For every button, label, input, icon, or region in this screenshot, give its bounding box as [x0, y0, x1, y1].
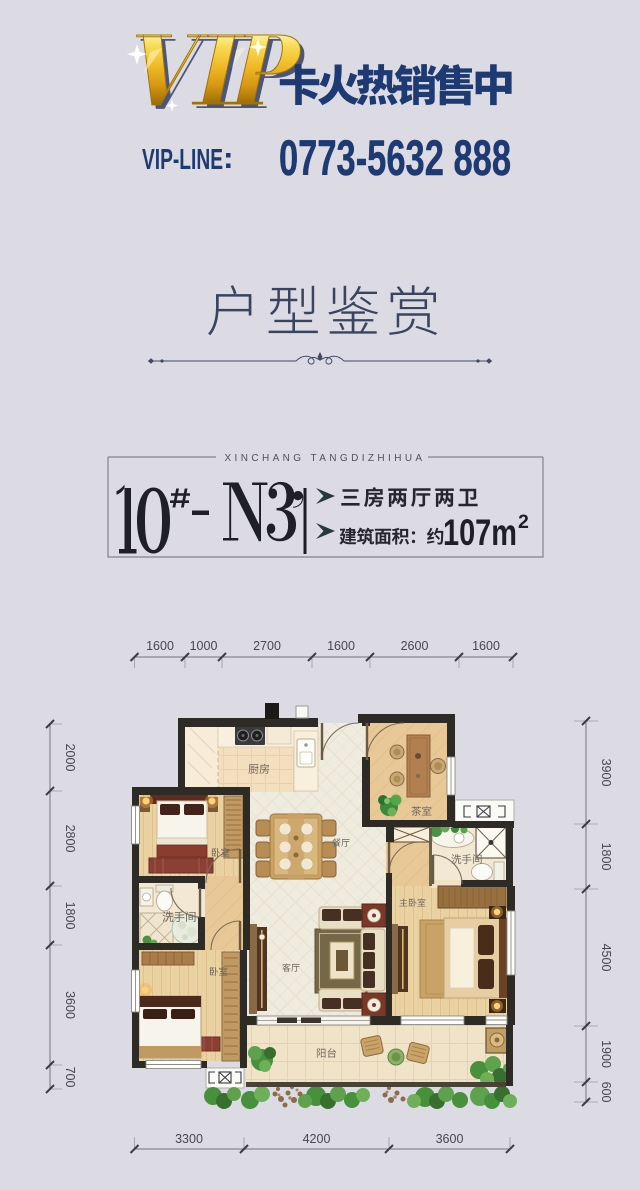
- svg-text:2: 2: [518, 511, 529, 533]
- svg-text:4500: 4500: [599, 944, 613, 972]
- svg-text:700: 700: [63, 1067, 77, 1088]
- svg-text:0773-5632 888: 0773-5632 888: [279, 130, 511, 186]
- svg-text:1600: 1600: [472, 639, 500, 653]
- svg-text:3600: 3600: [63, 991, 77, 1019]
- svg-text:1900: 1900: [599, 1040, 613, 1068]
- svg-text:2600: 2600: [401, 639, 429, 653]
- svg-text:1800: 1800: [599, 843, 613, 871]
- svg-text:107m: 107m: [443, 512, 517, 553]
- svg-text:3300: 3300: [175, 1132, 203, 1146]
- svg-text:600: 600: [599, 1082, 613, 1103]
- svg-text:XINCHANG TANGDIZHIHUA: XINCHANG TANGDIZHIHUA: [224, 453, 425, 464]
- svg-text:1000: 1000: [190, 639, 218, 653]
- svg-text:3900: 3900: [599, 759, 613, 787]
- svg-text:4200: 4200: [303, 1132, 331, 1146]
- svg-text:2700: 2700: [253, 639, 281, 653]
- svg-text:1600: 1600: [146, 639, 174, 653]
- svg-text:3600: 3600: [436, 1132, 464, 1146]
- svg-text:VIP-LINE: VIP-LINE: [142, 144, 223, 176]
- svg-text:1600: 1600: [327, 639, 355, 653]
- svg-text:1800: 1800: [63, 902, 77, 930]
- svg-text:2000: 2000: [63, 744, 77, 772]
- svg-text:2800: 2800: [63, 825, 77, 853]
